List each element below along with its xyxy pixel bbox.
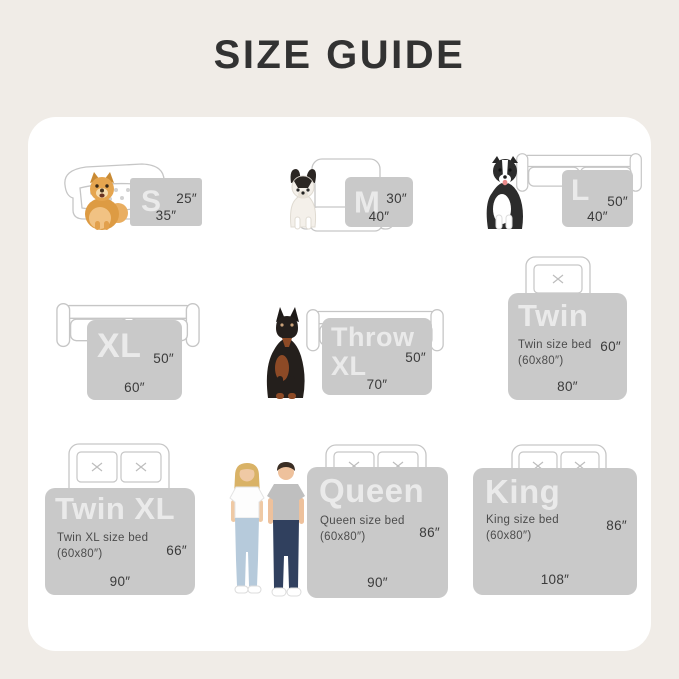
double-pillow-bed-icon (67, 443, 171, 493)
size-panel-throw-xl: Throw XL 50″ 70″ (322, 318, 432, 395)
bed-type-label: Twin size bed (60x80″) (518, 337, 592, 369)
size-label: Twin (518, 299, 588, 332)
border-collie-illustration (478, 155, 532, 231)
size-panel-twin-xl: Twin XL Twin XL size bed (60x80″) 66″ 90… (45, 488, 195, 595)
twin-bed-icon (512, 256, 604, 298)
size-label: L (571, 175, 590, 207)
height-dimension-label: 60″ (600, 339, 621, 354)
height-dimension-label: 86″ (419, 525, 440, 540)
pomeranian-dog-illustration (73, 169, 131, 231)
bed-type-label: Queen size bed (60x80″) (320, 513, 405, 545)
size-panel-m: M 30″ 40″ (345, 177, 413, 227)
width-dimension-label: 80″ (508, 379, 627, 394)
width-dimension-label: 60″ (87, 380, 182, 395)
width-dimension-label: 90″ (45, 574, 195, 589)
height-dimension-label: 50″ (153, 351, 174, 366)
size-label: Queen (319, 473, 424, 509)
size-guide-card: S 25″ 35″ M (28, 117, 651, 651)
width-dimension-label: 40″ (345, 209, 413, 224)
height-dimension-label: 25″ (176, 191, 197, 206)
size-label: XL (97, 328, 141, 365)
height-dimension-label: 66″ (166, 543, 187, 558)
bed-type-label: Twin XL size bed (60x80″) (57, 530, 148, 562)
size-panel-queen: Queen Queen size bed (60x80″) 86″ 90″ (307, 467, 448, 598)
size-panel-s: S 25″ 35″ (130, 178, 202, 226)
width-dimension-label: 108″ (473, 572, 637, 587)
doberman-dog-illustration (252, 306, 318, 400)
width-dimension-label: 70″ (322, 377, 432, 392)
bed-type-label: King size bed (60x80″) (486, 512, 559, 544)
size-panel-twin: Twin Twin size bed (60x80″) 60″ 80″ (508, 293, 627, 400)
height-dimension-label: 50″ (405, 350, 426, 365)
height-dimension-label: 86″ (606, 518, 627, 533)
size-panel-xl: XL 50″ 60″ (87, 320, 182, 400)
width-dimension-label: 40″ (562, 209, 633, 224)
size-label: King (485, 474, 560, 510)
width-dimension-label: 90″ (307, 575, 448, 590)
page-title: SIZE GUIDE (0, 33, 679, 78)
couple-illustration (218, 460, 312, 600)
width-dimension-label: 35″ (130, 208, 202, 223)
size-panel-king: King King size bed (60x80″) 86″ 108″ (473, 468, 637, 595)
french-bulldog-illustration (283, 167, 323, 231)
size-label: Twin XL (55, 492, 175, 525)
size-panel-l: L 50″ 40″ (562, 170, 633, 227)
height-dimension-label: 30″ (386, 191, 407, 206)
height-dimension-label: 50″ (607, 194, 628, 209)
